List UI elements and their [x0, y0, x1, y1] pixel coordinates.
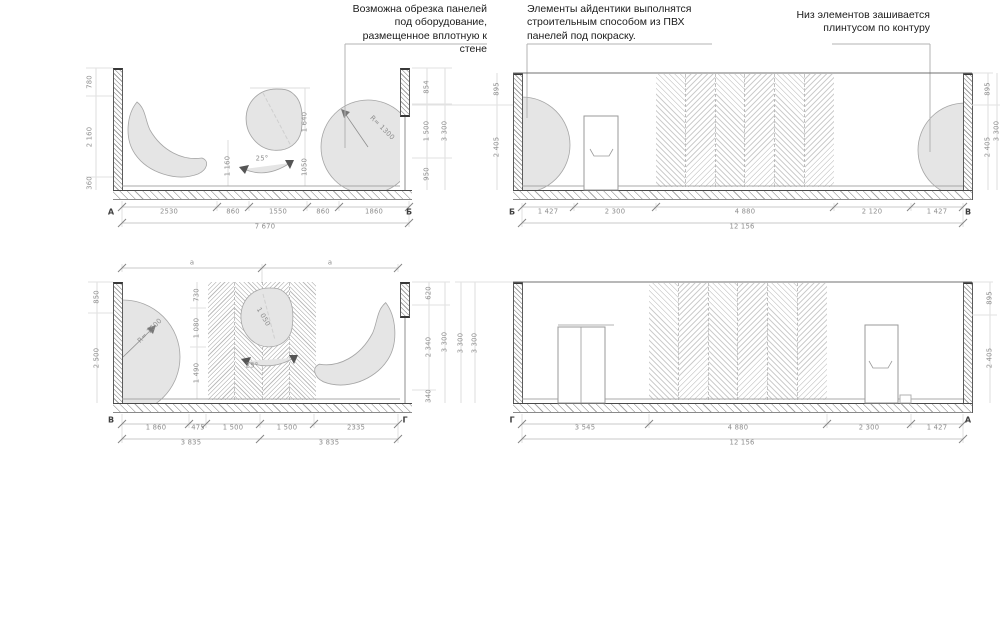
dim-label: 1 640 — [302, 112, 309, 132]
dim-label: 2 120 — [862, 209, 882, 216]
dim-label: 1 427 — [927, 425, 947, 432]
identity-blobs-a-b — [113, 68, 400, 190]
dim-label: 2 405 — [987, 348, 994, 368]
dim-label: 730 — [194, 288, 201, 302]
wall-column-right-v-g — [400, 282, 410, 318]
panel-strip — [768, 283, 798, 400]
floor-g-a — [513, 403, 972, 413]
annotation-identity-elements: Элементы айдентики выполнятся строительн… — [527, 3, 723, 43]
dim-label: 475 — [191, 425, 205, 432]
panel-strip — [263, 282, 290, 400]
dim-label: 895 — [985, 82, 992, 96]
dim-label: 2 500 — [94, 348, 101, 368]
wall-left-b-v — [513, 73, 523, 200]
dim-label: 3 300 — [472, 333, 479, 353]
dim-label: 1050 — [302, 158, 309, 176]
dim-label: 895 — [494, 82, 501, 96]
angle-label: 25° — [256, 156, 269, 163]
dim-label: 1 500 — [424, 121, 431, 141]
dim-label: 1 490 — [194, 363, 201, 383]
dim-label: 620 — [426, 286, 433, 300]
panel-strip — [775, 74, 805, 187]
wall-left-v-g — [113, 282, 123, 413]
dim-total-label: 12 156 — [730, 224, 755, 231]
dim-label: 340 — [426, 389, 433, 403]
dim-label: 2530 — [160, 209, 178, 216]
panel-strip — [290, 282, 316, 400]
wall-right-b-v — [963, 73, 973, 200]
dim-total-label: 7 670 — [255, 224, 275, 231]
dim-total-label: 12 156 — [730, 440, 755, 447]
dim-label: 1860 — [365, 209, 383, 216]
elevation-drawing-sheet: Возможна обрезка панелей под оборудовани… — [0, 0, 1000, 625]
annotation-panels-cut: Возможна обрезка панелей под оборудовани… — [337, 3, 487, 56]
dim-label: 3 300 — [458, 333, 465, 353]
annotation-plinth: Низ элементов зашивается плинтусом по ко… — [785, 9, 930, 36]
radius-label: R= 1500 — [137, 318, 164, 345]
dim-label: 1 860 — [146, 425, 166, 432]
dim-label: 895 — [987, 291, 994, 305]
wall-right-g-a — [963, 282, 973, 413]
dim-total-label: 3 300 — [442, 332, 449, 352]
wall-left-a-b — [113, 68, 123, 200]
panel-strip — [649, 283, 679, 400]
dim-label: 950 — [424, 167, 431, 181]
herringbone-panel-top-right — [656, 74, 834, 187]
dim-label: 4 880 — [728, 425, 748, 432]
panel-strip — [709, 283, 739, 400]
dim-label: 1 160 — [225, 156, 232, 176]
dim-label: 1 080 — [194, 318, 201, 338]
equal-mark: а — [190, 260, 194, 267]
panel-strip — [208, 282, 235, 400]
dim-label: 780 — [87, 75, 94, 89]
panel-strip — [738, 283, 768, 400]
axis-marker: Б — [406, 208, 412, 217]
panel-strip — [656, 74, 686, 187]
floor-a-b — [113, 190, 412, 200]
panel-strip — [235, 282, 262, 400]
dim-label: 860 — [316, 209, 330, 216]
dim-label: 2 300 — [605, 209, 625, 216]
panel-strip — [745, 74, 775, 187]
herringbone-panel-bottom-right — [649, 283, 827, 400]
axis-marker: А — [965, 416, 971, 425]
axis-marker: В — [108, 416, 114, 425]
dim-label: 1550 — [269, 209, 287, 216]
dim-label: 1 427 — [538, 209, 558, 216]
wall-column-right-a-b — [400, 68, 410, 117]
dim-label: 4 880 — [735, 209, 755, 216]
dim-label: 850 — [94, 290, 101, 304]
axis-marker: Б — [509, 208, 515, 217]
radius-label: R= 1300 — [369, 115, 396, 142]
dim-label: 2 405 — [494, 137, 501, 157]
floor-v-g — [113, 403, 412, 413]
axis-marker: А — [108, 208, 114, 217]
panel-strip — [686, 74, 716, 187]
panel-strip — [798, 283, 827, 400]
dim-label: 2 160 — [87, 127, 94, 147]
dim-label: 860 — [226, 209, 240, 216]
dim-label: 2335 — [347, 425, 365, 432]
herringbone-panel-bottom-left — [208, 282, 316, 400]
axis-marker: Г — [509, 416, 514, 425]
axis-marker: В — [965, 208, 971, 217]
dim-label: 360 — [87, 176, 94, 190]
dim-label: 3 545 — [575, 425, 595, 432]
dim-label: 854 — [424, 80, 431, 94]
dim-label: 2 405 — [985, 137, 992, 157]
wall-left-g-a — [513, 282, 523, 413]
panel-strip — [805, 74, 834, 187]
dim-total-label: 3 300 — [994, 121, 1000, 141]
dim-label: 2 340 — [426, 337, 433, 357]
dim-label: 1 500 — [277, 425, 297, 432]
angle-label: 25° — [246, 363, 259, 370]
equal-mark: а — [328, 260, 332, 267]
panel-strip — [716, 74, 746, 187]
dim-total-label: 3 835 — [181, 440, 201, 447]
dim-total-label: 3 300 — [442, 121, 449, 141]
dim-total-label: 3 835 — [319, 440, 339, 447]
dim-label: 2 300 — [859, 425, 879, 432]
floor-b-v — [513, 190, 972, 200]
dim-label: 1 427 — [927, 209, 947, 216]
axis-marker: Г — [402, 416, 407, 425]
panel-strip — [679, 283, 709, 400]
dim-label: 1 500 — [223, 425, 243, 432]
